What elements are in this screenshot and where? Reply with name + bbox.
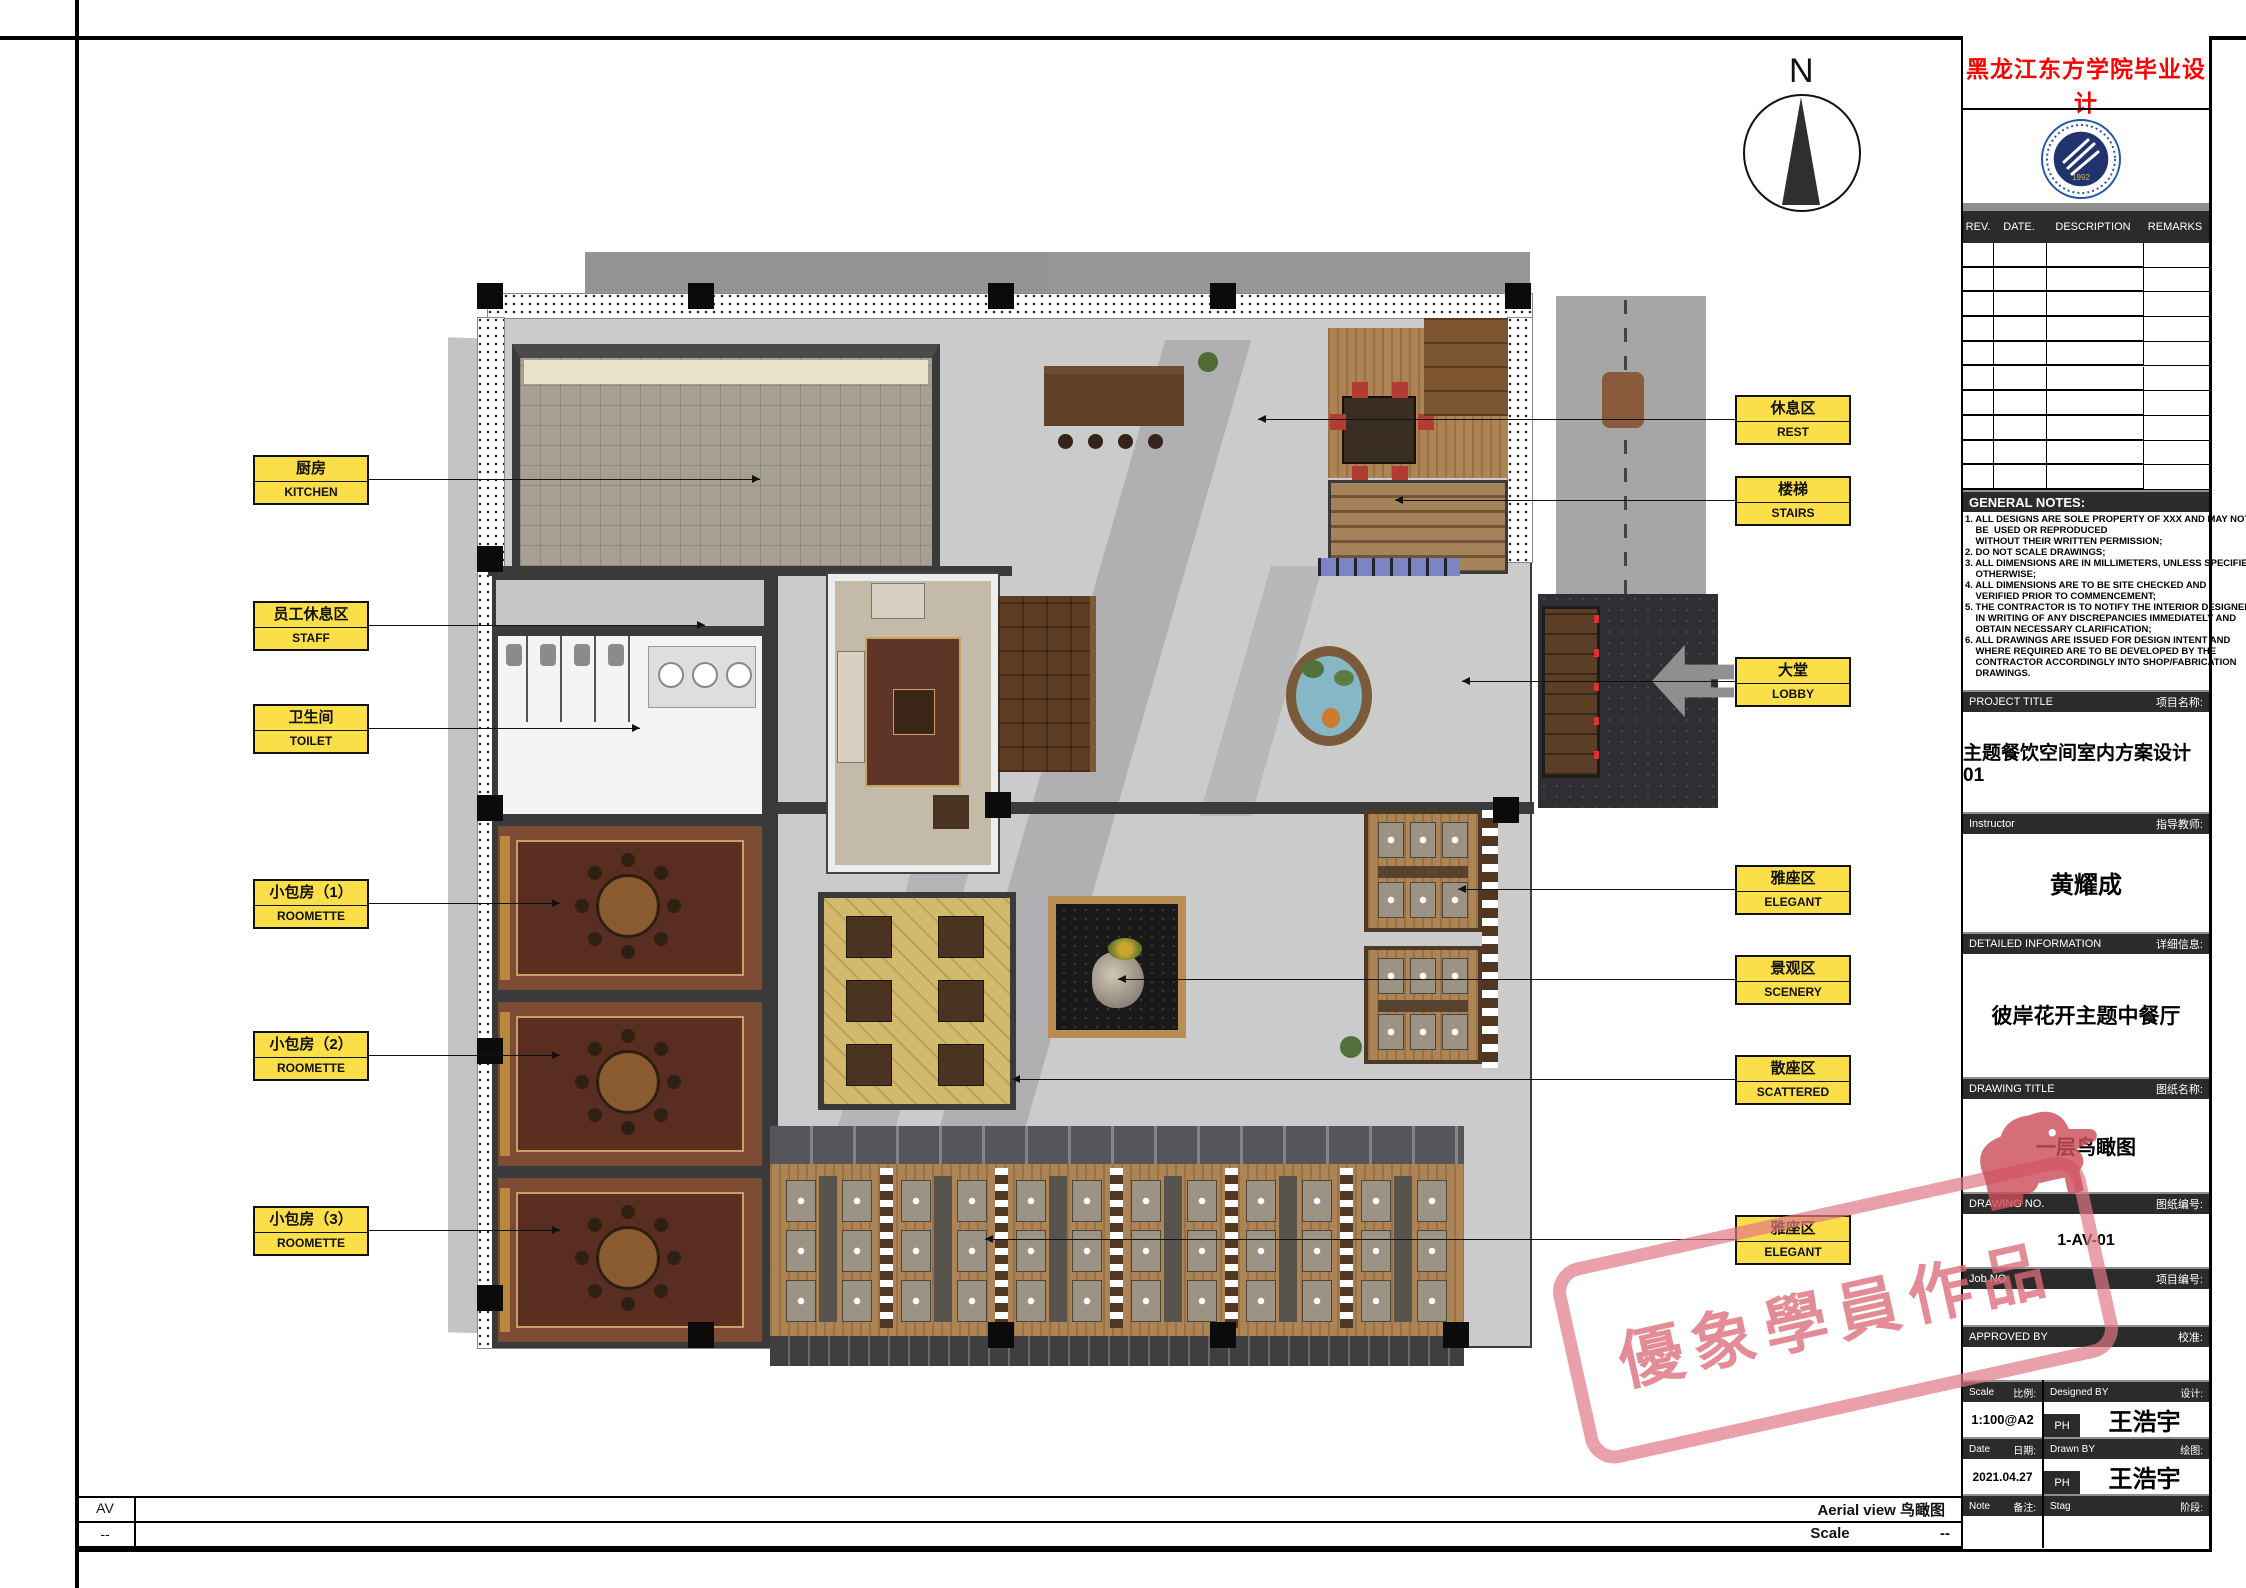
elegant-divider [1482, 810, 1498, 1068]
rev-cell [1994, 243, 2047, 267]
roomette-1 [492, 820, 768, 996]
leader-line [367, 625, 705, 626]
elegant-table [1410, 958, 1436, 994]
booth-group [778, 1176, 878, 1322]
roomette-chair [621, 1121, 635, 1135]
field-label-zh: 详细信息: [2156, 936, 2203, 952]
rev-cell [1963, 416, 1994, 440]
roomette-chair [575, 1075, 589, 1089]
dining-table [938, 916, 984, 958]
plan-label: 小包房（1）ROOMETTE [253, 879, 369, 929]
elegant-table [1442, 822, 1468, 858]
rev-row [1963, 465, 2209, 490]
booth-seat [957, 1180, 987, 1222]
door-hinge [1594, 751, 1599, 759]
booth-seat [1246, 1180, 1276, 1222]
roomette-chair [654, 1218, 668, 1232]
booth-seat [1131, 1180, 1161, 1222]
rev-row [1963, 391, 2209, 416]
field-label-en: Job NO. [1969, 1273, 2009, 1285]
scale-label-zh: 比例: [2013, 1385, 2036, 1400]
logo-year: 1992 [2072, 173, 2090, 182]
plan-label: 小包房（3）ROOMETTE [253, 1206, 369, 1256]
date-col: DATE. [1993, 221, 2045, 233]
booth-seat [1131, 1230, 1161, 1272]
booth-seat [1302, 1280, 1332, 1322]
roomette-chair [588, 932, 602, 946]
roomette-chair [621, 1297, 635, 1311]
entrance-door [1542, 606, 1600, 778]
roomette-table [596, 1226, 660, 1290]
toilet-stall-divider [594, 636, 596, 722]
booth-seat [842, 1180, 872, 1222]
note-label-zh: 备注: [2013, 1499, 2036, 1514]
toilet-fixture [608, 644, 624, 666]
rev-cell [1994, 391, 2047, 415]
plan-label: 厨房KITCHEN [253, 455, 369, 505]
scale-value: 1:100@A2 [1963, 1402, 2042, 1437]
roomette-chair [621, 1205, 635, 1219]
plan-label-zh: 小包房（2） [255, 1033, 367, 1058]
drawing-sheet: { "sheet": { "compass_n": "N" }, "waterm… [0, 0, 2246, 1588]
lobby-pond [1286, 646, 1372, 746]
structural-column [477, 1038, 503, 1064]
plan-label: 小包房（2）ROOMETTE [253, 1031, 369, 1081]
roomette-screen [500, 836, 510, 980]
booth-partition [1110, 1168, 1123, 1328]
booth-seat [786, 1230, 816, 1272]
leader-arrow-icon [752, 475, 760, 483]
field-label-en: DRAWING TITLE [1969, 1083, 2055, 1095]
structural-column [1210, 1322, 1236, 1348]
field-bar: PROJECT TITLE项目名称: [1963, 690, 2209, 712]
plan-label-en: TOILET [255, 731, 367, 752]
plan-label-en: REST [1737, 422, 1849, 443]
roomette-chair [588, 1284, 602, 1298]
pond-plants [1334, 670, 1354, 686]
leader-arrow-icon [1012, 1075, 1020, 1083]
rev-cell [1994, 367, 2047, 391]
tea-room-sofa [871, 583, 925, 619]
date-label-zh: 日期: [2013, 1442, 2036, 1457]
field-label-zh: 项目名称: [2156, 694, 2203, 710]
elegant-table [1410, 822, 1436, 858]
rest-cushion [1392, 382, 1408, 398]
toilet-fixture [574, 644, 590, 666]
booth-seat [842, 1280, 872, 1322]
field-label-en: Instructor [1969, 818, 2015, 830]
roomette-chair [588, 1108, 602, 1122]
road-dash-line [1624, 300, 1627, 594]
roomette-chair [654, 1108, 668, 1122]
door-hinge [1594, 717, 1599, 725]
booth-seat [957, 1280, 987, 1322]
booth-partition [995, 1168, 1008, 1328]
booth-seat [901, 1180, 931, 1222]
roomette-table [596, 1050, 660, 1114]
field-bar: DETAILED INFORMATION详细信息: [1963, 932, 2209, 954]
rev-row [1963, 292, 2209, 317]
leader-line [367, 1230, 560, 1231]
plan-label-en: ROOMETTE [255, 1233, 367, 1254]
sheet-top-border [0, 36, 2246, 40]
rev-row [1963, 441, 2209, 466]
compass-n-label: N [1789, 52, 1814, 91]
elegant-table [1378, 958, 1404, 994]
booth-seat [1016, 1180, 1046, 1222]
booth-aisle [1279, 1176, 1297, 1322]
plan-label: 休息区REST [1735, 395, 1851, 445]
roomette-chair [654, 1284, 668, 1298]
elegant-table [1378, 1014, 1404, 1050]
door-hinge [1594, 615, 1599, 623]
rev-cell [2047, 243, 2144, 267]
roomette-chair [654, 932, 668, 946]
structural-column [688, 283, 714, 309]
dining-table [846, 1044, 892, 1086]
elegant-table [1442, 958, 1468, 994]
plan-label-zh: 雅座区 [1737, 867, 1849, 892]
plan-label-zh: 雅座区 [1737, 1217, 1849, 1242]
booth-seat [1417, 1180, 1447, 1222]
plan-label-en: ELEGANT [1737, 892, 1849, 913]
leader-arrow-icon [1458, 885, 1466, 893]
compass-needle-icon [1782, 97, 1820, 205]
booth-seat [1302, 1180, 1332, 1222]
structural-column [1210, 283, 1236, 309]
booth-seat [1302, 1230, 1332, 1272]
leader-arrow-icon [1118, 975, 1126, 983]
tea-room-sofa [837, 651, 865, 763]
rev-cell [1994, 441, 2047, 465]
booth-group [893, 1176, 993, 1322]
field-value: 一层鸟瞰图 [1963, 1099, 2209, 1192]
leader-line [367, 728, 640, 729]
plant [1340, 1036, 1362, 1058]
plan-label-zh: 小包房（3） [255, 1208, 367, 1233]
leader-line [367, 903, 560, 904]
rev-row [1963, 317, 2209, 342]
structural-column [688, 1322, 714, 1348]
leader-arrow-icon [1395, 496, 1403, 504]
roomette-chair [667, 1251, 681, 1265]
plan-label-en: SCENERY [1737, 982, 1849, 1003]
glass-band [1318, 558, 1460, 576]
toilet-stall-divider [628, 636, 630, 722]
structural-column [988, 1322, 1014, 1348]
booth-seat [1187, 1230, 1217, 1272]
booth-aisle [819, 1176, 837, 1322]
leader-line [1462, 681, 1737, 682]
roomette-table [596, 874, 660, 938]
rev-cell [2047, 268, 2144, 292]
reception-stool [1118, 434, 1133, 449]
booth-walkway [770, 1336, 1464, 1366]
door-hinge [1594, 649, 1599, 657]
booth-group [1123, 1176, 1223, 1322]
field-label-en: DRAWING NO. [1969, 1198, 2044, 1210]
plan-label: 散座区SCATTERED [1735, 1055, 1851, 1105]
leader-line [1012, 1079, 1737, 1080]
plan-label-zh: 休息区 [1737, 397, 1849, 422]
roomette-chair [654, 866, 668, 880]
rev-cell [1994, 342, 2047, 366]
leader-line [367, 1055, 560, 1056]
toilet-stall-divider [560, 636, 562, 722]
rev-row [1963, 268, 2209, 293]
drawn-label-en: Drawn BY [2050, 1444, 2095, 1455]
field-label-zh: 项目编号: [2156, 1271, 2203, 1287]
elegant-table [1378, 822, 1404, 858]
booth-partition [880, 1168, 893, 1328]
view-code: AV [79, 1500, 131, 1516]
rev-cell [1994, 416, 2047, 440]
leader-line [367, 479, 760, 480]
field-bar: APPROVED BY校准: [1963, 1325, 2209, 1347]
plan-label: 楼梯STAIRS [1735, 476, 1851, 526]
booth-aisle [1394, 1176, 1412, 1322]
plan-label-en: STAIRS [1737, 503, 1849, 524]
elegant-aisle [1378, 1000, 1468, 1012]
roomette-chair [621, 945, 635, 959]
plan-label-zh: 大堂 [1737, 659, 1849, 684]
booth-seat [1417, 1230, 1447, 1272]
field-label-zh: 图纸名称: [2156, 1081, 2203, 1097]
stage-label-en: Stag [2050, 1501, 2071, 1512]
exterior-road [1556, 296, 1706, 598]
reception-stool [1058, 434, 1073, 449]
general-notes-body: 1. ALL DESIGNS ARE SOLE PROPERTY OF XXX … [1965, 514, 2207, 679]
date-value: 2021.04.27 [1963, 1459, 2042, 1494]
elegant-zone-2 [1364, 946, 1482, 1064]
plan-label: 雅座区ELEGANT [1735, 865, 1851, 915]
field-value: 1-AV-01 [1963, 1214, 2209, 1267]
leader-line [1458, 889, 1737, 890]
view-title: Aerial view 鸟瞰图 [1400, 1499, 1945, 1520]
elegant-aisle [1378, 866, 1468, 878]
structural-column [477, 546, 503, 572]
field-bar: DRAWING NO.图纸编号: [1963, 1192, 2209, 1214]
plan-label-en: ROOMETTE [255, 1058, 367, 1079]
plan-label-en: ROOMETTE [255, 906, 367, 927]
elegant-table [1378, 882, 1404, 918]
leader-line [1258, 419, 1737, 420]
rev-cell [2047, 465, 2144, 489]
plan-label-zh: 小包房（1） [255, 881, 367, 906]
field-label-en: PROJECT TITLE [1969, 696, 2053, 708]
pond-koi [1322, 708, 1340, 728]
footer-cell-divider [134, 1496, 136, 1548]
rev-cell [1963, 391, 1994, 415]
roomette-chair [667, 1075, 681, 1089]
rev-cell [1994, 268, 2047, 292]
plan-label-zh: 卫生间 [255, 706, 367, 731]
rev-cell [1963, 243, 1994, 267]
booth-seat [1246, 1230, 1276, 1272]
rev-cell [1963, 317, 1994, 341]
wood-canopy [998, 596, 1096, 772]
plan-label-en: STAFF [255, 628, 367, 649]
dining-table [846, 916, 892, 958]
field-label-zh: 校准: [2178, 1329, 2203, 1345]
scale-bar: Scale 比例: [1963, 1380, 2042, 1402]
drawn-value: 王浩宇 [2080, 1459, 2209, 1494]
rev-cell [2047, 441, 2144, 465]
booth-seat [1246, 1280, 1276, 1322]
title-divider [1963, 108, 2209, 110]
university-logo: 1992 [2040, 118, 2122, 200]
rev-row [1963, 416, 2209, 441]
view-code-row2: -- [79, 1526, 131, 1542]
view-scale-value: -- [1920, 1525, 1950, 1542]
booth-seat [901, 1280, 931, 1322]
plan-label-zh: 厨房 [255, 457, 367, 482]
scale-label-en: Scale [1969, 1387, 1994, 1398]
date-label-en: Date [1969, 1444, 1990, 1455]
booth-seat [842, 1230, 872, 1272]
booth-partition [1340, 1168, 1353, 1328]
designed-value: 王浩宇 [2080, 1402, 2209, 1437]
booth-seat [786, 1180, 816, 1222]
plan-label-en: KITCHEN [255, 482, 367, 503]
structural-column [985, 792, 1011, 818]
rev-cell [1963, 367, 1994, 391]
reception-desk [1044, 366, 1184, 426]
field-value: 彼岸花开主题中餐厅 [1963, 954, 2209, 1075]
booth-seat [1187, 1280, 1217, 1322]
remarks-col: REMARKS [2141, 221, 2209, 233]
toilet-sink [658, 662, 684, 688]
plan-label-en: ELEGANT [1737, 1242, 1849, 1263]
rev-cell [1963, 292, 1994, 316]
field-value: 主题餐饮空间室内方案设计01 [1963, 712, 2209, 812]
rev-row [1963, 243, 2209, 268]
elegant-table [1410, 1014, 1436, 1050]
leader-line [985, 1239, 1737, 1240]
rev-table-gray-strip [1963, 203, 2209, 211]
footer-line-top [75, 1496, 1961, 1498]
kitchen-counter-strip [524, 360, 928, 384]
booth-seat [1187, 1180, 1217, 1222]
plan-label-zh: 散座区 [1737, 1057, 1849, 1082]
drawn-label-zh: 绘图: [2180, 1442, 2203, 1457]
tea-room [828, 574, 998, 872]
roomette-2 [492, 996, 768, 1172]
structural-column [1505, 283, 1531, 309]
plan-label-zh: 员工休息区 [255, 603, 367, 628]
leader-arrow-icon [552, 1226, 560, 1234]
rest-cushion [1330, 414, 1346, 430]
structural-column [477, 1285, 503, 1311]
booth-group [1008, 1176, 1108, 1322]
dining-table [846, 980, 892, 1022]
booth-seat [1361, 1230, 1391, 1272]
leader-line [1395, 500, 1737, 501]
booth-group [1353, 1176, 1453, 1322]
rev-cell [2047, 391, 2144, 415]
rev-cell [1994, 317, 2047, 341]
leader-arrow-icon [985, 1235, 993, 1243]
rev-cell [1963, 441, 1994, 465]
plan-label: 卫生间TOILET [253, 704, 369, 754]
leader-line [1118, 979, 1737, 980]
leader-arrow-icon [1258, 415, 1266, 423]
toilet-fixture [506, 644, 522, 666]
rest-cushion [1352, 382, 1368, 398]
elegant-zone-1 [1364, 810, 1482, 932]
field-label-zh: 图纸编号: [2156, 1196, 2203, 1212]
booth-seat [901, 1230, 931, 1272]
roomette-chair [621, 853, 635, 867]
field-bar: Job NO.项目编号: [1963, 1267, 2209, 1289]
booth-group [1238, 1176, 1338, 1322]
rev-cell [2047, 367, 2144, 391]
rev-header: REV. DATE. DESCRIPTION REMARKS [1963, 211, 2209, 243]
booth-aisle [1164, 1176, 1182, 1322]
booth-partition [1225, 1168, 1238, 1328]
rev-cell [1963, 268, 1994, 292]
staff-room [492, 576, 768, 630]
booth-seat [1131, 1280, 1161, 1322]
plant [1198, 352, 1218, 372]
description-col: DESCRIPTION [2045, 221, 2141, 233]
rev-col: REV. [1963, 221, 1993, 233]
rev-cell [2047, 317, 2144, 341]
field-label-zh: 指导教师: [2156, 816, 2203, 832]
leader-arrow-icon [632, 724, 640, 732]
rev-cell [1963, 342, 1994, 366]
footer-line-mid [75, 1521, 1961, 1523]
booth-seat [786, 1280, 816, 1322]
toilet-stall-divider [526, 636, 528, 722]
field-label-en: APPROVED BY [1969, 1331, 2048, 1343]
scattered-dining-zone [818, 892, 1016, 1110]
designed-label-zh: 设计: [2180, 1385, 2203, 1400]
structural-column [1493, 797, 1519, 823]
leader-arrow-icon [697, 621, 705, 629]
title-block: 黑龙江东方学院毕业设计 1992 REV. DATE. DESCRIPTION … [1963, 36, 2209, 1549]
rev-cell [1994, 465, 2047, 489]
structural-column [1443, 1322, 1469, 1348]
booth-seat [1361, 1180, 1391, 1222]
rev-cell [1963, 465, 1994, 489]
general-notes-title: GENERAL NOTES: [1969, 495, 2085, 510]
booth-aisle [1049, 1176, 1067, 1322]
rev-row [1963, 367, 2209, 392]
note-bar: Note 备注: [1963, 1494, 2042, 1516]
cabinet-block [1424, 318, 1508, 416]
structural-column [988, 283, 1014, 309]
reception-stool [1088, 434, 1103, 449]
booth-seat [1016, 1280, 1046, 1322]
leader-arrow-icon [552, 1051, 560, 1059]
booth-seat [1072, 1180, 1102, 1222]
toilet-fixture [540, 644, 556, 666]
scenery-box [1048, 896, 1186, 1038]
dining-table [938, 1044, 984, 1086]
plan-label: 大堂LOBBY [1735, 657, 1851, 707]
rest-cushion [1418, 414, 1434, 430]
rev-row [1963, 342, 2209, 367]
plan-label-en: LOBBY [1737, 684, 1849, 705]
dining-table [938, 980, 984, 1022]
tea-room-table [893, 689, 935, 735]
pond-plants [1302, 660, 1324, 678]
elegant-table [1410, 882, 1436, 918]
door-hinge [1594, 683, 1599, 691]
plan-label-zh: 楼梯 [1737, 478, 1849, 503]
toilet-sink [692, 662, 718, 688]
